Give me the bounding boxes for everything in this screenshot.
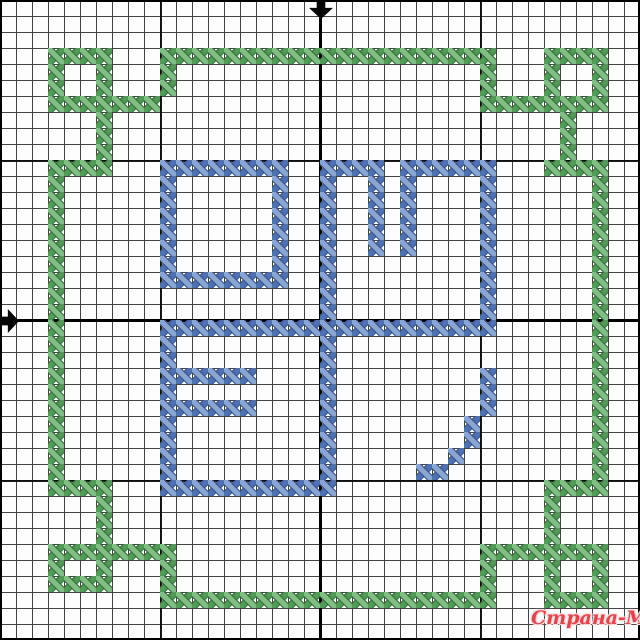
cross-stitch-green [48,224,64,240]
cross-stitch-green [96,96,112,112]
cross-stitch-blue [336,320,352,336]
cross-stitch-blue [256,320,272,336]
cross-stitch-green [48,48,64,64]
cross-stitch-blue [320,288,336,304]
cross-stitch-blue [256,160,272,176]
cross-stitch-green [512,96,528,112]
cross-stitch-blue [160,432,176,448]
cross-stitch-green [592,576,608,592]
cross-stitch-blue [480,160,496,176]
cross-stitch-green [48,416,64,432]
cross-stitch-blue [384,320,400,336]
cross-stitch-green [64,48,80,64]
cross-stitch-green [592,176,608,192]
cross-stitch-green [480,544,496,560]
cross-stitch-green [96,64,112,80]
cross-stitch-blue [240,160,256,176]
cross-stitch-green [304,48,320,64]
cross-stitch-green [384,592,400,608]
cross-stitch-green [48,208,64,224]
cross-stitch-green [592,544,608,560]
cross-stitch-green [96,528,112,544]
cross-stitch-blue [480,176,496,192]
cross-stitch-blue [272,320,288,336]
cross-stitch-blue [224,368,240,384]
cross-stitch-green [96,512,112,528]
cross-stitch-blue [320,224,336,240]
cross-stitch-blue [160,256,176,272]
cross-stitch-blue [272,192,288,208]
cross-stitch-green [448,48,464,64]
cross-stitch-blue [368,192,384,208]
cross-stitch-green [128,544,144,560]
cross-stitch-blue [480,240,496,256]
cross-stitch-green [192,48,208,64]
cross-stitch-green [48,368,64,384]
cross-stitch-blue [320,464,336,480]
cross-stitch-blue [224,160,240,176]
cross-stitch-blue [160,320,176,336]
cross-stitch-green [80,48,96,64]
cross-stitch-blue [192,272,208,288]
cross-stitch-blue [400,160,416,176]
cross-stitch-green [480,48,496,64]
cross-stitch-blue [272,480,288,496]
cross-stitch-green [528,544,544,560]
cross-stitch-blue [272,272,288,288]
cross-stitch-green [48,384,64,400]
cross-stitch-blue [272,224,288,240]
cross-stitch-green [288,48,304,64]
cross-stitch-blue [320,416,336,432]
cross-stitch-green [544,160,560,176]
cross-stitch-green [96,48,112,64]
cross-stitch-blue [208,320,224,336]
cross-stitch-green [160,64,176,80]
cross-stitch-blue [464,432,480,448]
cross-stitch-blue [160,464,176,480]
cross-stitch-green [48,160,64,176]
cross-stitch-green [480,96,496,112]
cross-stitch-blue [176,400,192,416]
cross-stitch-blue [160,240,176,256]
cross-stitch-blue [256,480,272,496]
cross-stitch-green [592,336,608,352]
cross-stitch-blue [368,176,384,192]
cross-stitch-blue [320,320,336,336]
cross-stitch-green [48,176,64,192]
cross-stitch-blue [432,320,448,336]
cross-stitch-green [240,48,256,64]
cross-stitch-green [256,592,272,608]
cross-stitch-green [80,544,96,560]
cross-stitch-green [160,576,176,592]
cross-stitch-blue [288,480,304,496]
cross-stitch-green [320,48,336,64]
cross-stitch-green [352,592,368,608]
cross-stitch-green [336,48,352,64]
cross-stitch-green [96,560,112,576]
cross-stitch-green [304,592,320,608]
cross-stitch-blue [240,320,256,336]
cross-stitch-green [80,96,96,112]
cross-stitch-green [592,272,608,288]
cross-stitch-green [576,96,592,112]
cross-stitch-green [240,592,256,608]
cross-stitch-green [112,96,128,112]
cross-stitch-blue [160,224,176,240]
cross-stitch-blue [320,192,336,208]
cross-stitch-blue [208,272,224,288]
cross-stitch-green [128,96,144,112]
cross-stitch-blue [192,480,208,496]
cross-stitch-green [272,48,288,64]
cross-stitch-blue [320,176,336,192]
cross-stitch-green [96,480,112,496]
cross-stitch-blue [160,192,176,208]
cross-stitch-blue [272,240,288,256]
cross-stitch-green [592,384,608,400]
cross-stitch-blue [416,320,432,336]
cross-stitch-green [80,576,96,592]
cross-stitch-green [96,144,112,160]
cross-stitch-green [96,160,112,176]
cross-stitch-blue [176,480,192,496]
cross-stitch-blue [160,448,176,464]
cross-stitch-green [176,48,192,64]
cross-stitch-green [48,480,64,496]
cross-stitch-green [160,592,176,608]
cross-stitch-green [592,304,608,320]
cross-stitch-blue [416,464,432,480]
cross-stitch-green [496,544,512,560]
cross-stitch-blue [160,208,176,224]
cross-stitch-green [464,592,480,608]
cross-stitch-blue [320,368,336,384]
cross-stitch-green [592,208,608,224]
cross-stitch-blue [464,320,480,336]
cross-stitch-blue [400,176,416,192]
cross-stitch-blue [288,320,304,336]
cross-stitch-blue [400,224,416,240]
cross-stitch-green [96,544,112,560]
cross-stitch-green [288,592,304,608]
cross-stitch-green [560,592,576,608]
cross-stitch-green [592,400,608,416]
cross-stitch-green [592,560,608,576]
cross-stitch-pattern-grid: Страна-Мам [0,0,640,640]
cross-stitch-green [560,128,576,144]
cross-stitch-blue [160,368,176,384]
cross-stitch-green [496,96,512,112]
cross-stitch-blue [480,384,496,400]
cross-stitch-blue [240,368,256,384]
cross-stitch-green [464,48,480,64]
arrow-right-icon [1,309,19,333]
cross-stitch-blue [352,160,368,176]
cross-stitch-blue [160,160,176,176]
cross-stitch-green [48,560,64,576]
cross-stitch-blue [416,160,432,176]
cross-stitch-blue [480,288,496,304]
cross-stitch-green [576,160,592,176]
cross-stitch-green [208,592,224,608]
cross-stitch-green [48,272,64,288]
cross-stitch-green [480,560,496,576]
cross-stitch-blue [480,320,496,336]
cross-stitch-green [96,576,112,592]
cross-stitch-blue [240,400,256,416]
cross-stitch-blue [272,208,288,224]
cross-stitch-green [480,576,496,592]
cross-stitch-green [592,288,608,304]
cross-stitch-green [480,80,496,96]
cross-stitch-green [48,192,64,208]
cross-stitch-blue [320,160,336,176]
cross-stitch-blue [320,448,336,464]
cross-stitch-blue [192,400,208,416]
cross-stitch-blue [272,160,288,176]
cross-stitch-green [368,48,384,64]
cross-stitch-green [80,480,96,496]
cross-stitch-green [64,160,80,176]
cross-stitch-blue [176,160,192,176]
cross-stitch-green [432,592,448,608]
cross-stitch-green [480,64,496,80]
cross-stitch-green [544,528,560,544]
cross-stitch-blue [336,160,352,176]
cross-stitch-green [528,96,544,112]
cross-stitch-green [48,320,64,336]
cross-stitch-blue [160,400,176,416]
cross-stitch-green [48,576,64,592]
cross-stitch-green [592,432,608,448]
cross-stitch-green [224,592,240,608]
cross-stitch-green [176,592,192,608]
cross-stitch-green [592,464,608,480]
cross-stitch-green [592,320,608,336]
cross-stitch-green [544,480,560,496]
cross-stitch-green [48,304,64,320]
watermark-text: Страна-Мам [531,607,640,629]
cross-stitch-green [48,288,64,304]
cross-stitch-blue [192,160,208,176]
cross-stitch-green [544,512,560,528]
cross-stitch-green [592,240,608,256]
cross-stitch-blue [320,384,336,400]
cross-stitch-green [576,48,592,64]
cross-stitch-green [560,544,576,560]
cross-stitch-green [544,560,560,576]
cross-stitch-green [560,144,576,160]
cross-stitch-green [80,160,96,176]
cross-stitch-blue [320,240,336,256]
cross-stitch-green [112,544,128,560]
cross-stitch-green [272,592,288,608]
cross-stitch-blue [368,224,384,240]
cross-stitch-green [352,48,368,64]
cross-stitch-green [592,48,608,64]
cross-stitch-green [160,80,176,96]
cross-stitch-blue [224,480,240,496]
cross-stitch-blue [160,352,176,368]
cross-stitch-green [208,48,224,64]
cross-stitch-blue [480,304,496,320]
cross-stitch-blue [400,320,416,336]
cross-stitch-green [560,480,576,496]
cross-stitch-green [560,160,576,176]
cross-stitch-green [560,112,576,128]
cross-stitch-green [592,80,608,96]
cross-stitch-green [576,544,592,560]
cross-stitch-blue [448,160,464,176]
cross-stitch-blue [464,160,480,176]
cross-stitch-green [64,480,80,496]
cross-stitch-blue [368,208,384,224]
cross-stitch-green [544,496,560,512]
cross-stitch-blue [320,304,336,320]
cross-stitch-blue [320,272,336,288]
cross-stitch-blue [160,384,176,400]
cross-stitch-blue [272,256,288,272]
cross-stitch-green [144,544,160,560]
cross-stitch-blue [320,432,336,448]
cross-stitch-blue [192,368,208,384]
cross-stitch-blue [208,160,224,176]
cross-stitch-blue [304,480,320,496]
cross-stitch-green [48,256,64,272]
cross-stitch-blue [480,224,496,240]
cross-stitch-green [48,464,64,480]
cross-stitch-blue [464,416,480,432]
cross-stitch-green [368,592,384,608]
cross-stitch-green [400,48,416,64]
cross-stitch-green [48,448,64,464]
cross-stitch-green [544,48,560,64]
cross-stitch-blue [304,320,320,336]
cross-stitch-green [48,240,64,256]
cross-stitch-green [576,592,592,608]
cross-stitch-blue [368,320,384,336]
cross-stitch-blue [368,240,384,256]
cross-stitch-green [592,192,608,208]
cross-stitch-blue [400,208,416,224]
cross-stitch-blue [256,272,272,288]
cross-stitch-blue [320,400,336,416]
cross-stitch-blue [432,464,448,480]
cross-stitch-green [48,544,64,560]
cross-stitch-green [64,96,80,112]
cross-stitch-green [160,48,176,64]
cross-stitch-green [416,592,432,608]
cross-stitch-green [96,112,112,128]
cross-stitch-green [256,48,272,64]
cross-stitch-green [560,48,576,64]
cross-stitch-green [48,64,64,80]
cross-stitch-blue [320,208,336,224]
cross-stitch-green [544,576,560,592]
cross-stitch-green [64,576,80,592]
cross-stitch-green [48,432,64,448]
cross-stitch-green [160,560,176,576]
cross-stitch-green [592,160,608,176]
cross-stitch-blue [448,448,464,464]
cross-stitch-green [592,96,608,112]
cross-stitch-green [592,256,608,272]
cross-stitch-blue [160,272,176,288]
cross-stitch-green [480,592,496,608]
cross-stitch-green [192,592,208,608]
cross-stitch-green [592,416,608,432]
cross-stitch-green [64,544,80,560]
arrow-down-icon [309,1,333,19]
cross-stitch-blue [224,400,240,416]
cross-stitch-blue [352,320,368,336]
cross-stitch-blue [320,256,336,272]
cross-stitch-green [544,96,560,112]
cross-stitch-blue [176,272,192,288]
cross-stitch-green [320,592,336,608]
cross-stitch-green [576,480,592,496]
cross-stitch-blue [160,336,176,352]
cross-stitch-green [48,96,64,112]
cross-stitch-green [48,80,64,96]
cross-stitch-blue [480,256,496,272]
cross-stitch-green [544,592,560,608]
cross-stitch-blue [480,368,496,384]
cross-stitch-green [592,64,608,80]
cross-stitch-green [592,480,608,496]
cross-stitch-green [544,80,560,96]
cross-stitch-blue [320,336,336,352]
cross-stitch-green [48,336,64,352]
cross-stitch-green [560,96,576,112]
cross-stitch-blue [432,160,448,176]
cross-stitch-green [336,592,352,608]
cross-stitch-blue [320,480,336,496]
cross-stitch-blue [480,272,496,288]
cross-stitch-blue [208,480,224,496]
cross-stitch-blue [176,368,192,384]
cross-stitch-blue [272,176,288,192]
cross-stitch-green [160,544,176,560]
cross-stitch-green [592,368,608,384]
cross-stitch-green [544,64,560,80]
cross-stitch-blue [160,416,176,432]
cross-stitch-blue [480,192,496,208]
cross-stitch-blue [368,160,384,176]
cross-stitch-green [96,128,112,144]
cross-stitch-green [48,400,64,416]
cross-stitch-blue [240,480,256,496]
cross-stitch-green [432,48,448,64]
cross-stitch-blue [480,400,496,416]
cross-stitch-green [592,592,608,608]
cross-stitch-blue [192,320,208,336]
cross-stitch-green [592,448,608,464]
cross-stitch-blue [160,480,176,496]
cross-stitch-blue [400,240,416,256]
cross-stitch-green [512,544,528,560]
cross-stitch-green [448,592,464,608]
cross-stitch-green [96,80,112,96]
cross-stitch-green [592,224,608,240]
cross-stitch-blue [224,272,240,288]
cross-stitch-green [544,544,560,560]
cross-stitch-green [400,592,416,608]
cross-stitch-green [144,96,160,112]
cross-stitch-green [96,496,112,512]
